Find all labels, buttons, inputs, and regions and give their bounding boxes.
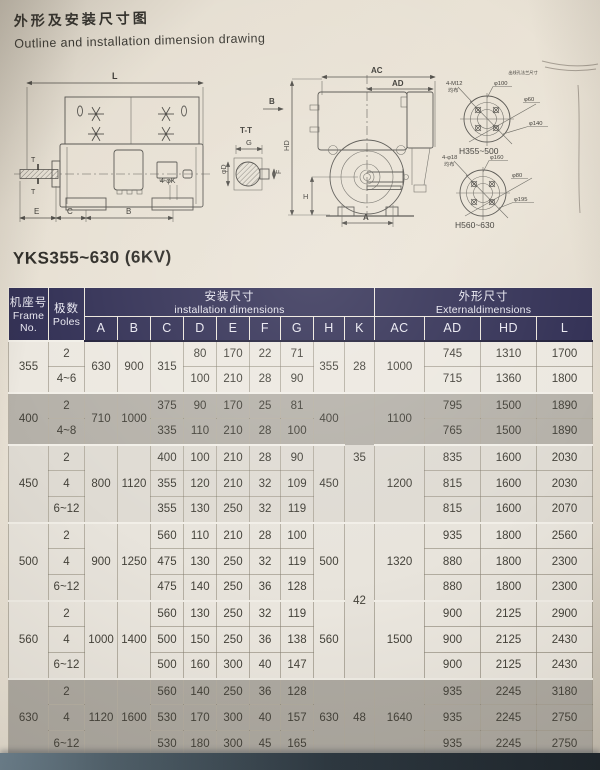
dim-cell: 1000 [375,341,425,393]
dimension-drawings: L T T 4-φK E C [0,55,600,250]
table-row: 355 2 630 900 315 80 170 22 71 355 28 10… [9,341,593,367]
dim-cell: 32 [250,601,281,627]
dim-cell: 130 [184,549,217,575]
page-title-en: Outline and installation dimension drawi… [14,31,265,51]
dim-label-hd: HD [282,140,291,151]
col-g: G [281,317,314,341]
dim-cell: 1500 [481,419,537,445]
dim-cell: 375 [151,393,184,419]
dim-cell: 900 [425,601,481,627]
frame-cell: 400 [9,393,49,445]
poles-cell: 2 [49,523,85,549]
dim-cell: 119 [281,549,314,575]
outlet-flange-detail-355-500: 出线孔法兰尺寸 4-M12 均布 φ100 φ60 φ140 H355~500 [446,69,548,156]
dim-cell: 3180 [537,679,593,705]
dim-cell: 28 [250,445,281,471]
dim-cell: 128 [281,679,314,705]
table-row: 400 2 710 1000 375 90 170 25 81 400 35 1… [9,393,593,419]
install-label-en: installation dimensions [85,304,374,316]
dim-cell: 40 [250,653,281,679]
dim-cell: 90 [281,445,314,471]
dim-cell: 110 [184,523,217,549]
dim-cell: 100 [184,445,217,471]
col-group-external: 外形尺寸 Externaldimensions [375,288,593,317]
dim-cell: 28 [345,341,375,393]
dim-cell: 2430 [537,627,593,653]
view-b-label: B [269,97,275,106]
page-title-block: 外形及安装尺寸图 Outline and installation dimens… [14,5,266,51]
dim-label-l: L [112,71,118,81]
poles-cell: 2 [49,679,85,705]
dim-cell: 355 [151,497,184,523]
dim-cell: 2125 [481,601,537,627]
dim-cell: 1600 [118,679,151,757]
dim-cell: 1000 [118,393,151,445]
dim-cell: 560 [151,523,184,549]
dimensions-table: 机座号 Frame No. 极数 Poles 安装尺寸 installation… [8,287,593,757]
terminal-box [114,150,143,190]
dim-cell: 2750 [537,705,593,731]
col-ad: AD [425,317,481,341]
dim-cell: 880 [425,575,481,601]
dim-cell: 170 [217,341,250,367]
frame-cell: 500 [9,523,49,601]
dim-cell: 1600 [481,471,537,497]
frame-cell: 560 [9,601,49,679]
dim-cell: 800 [85,445,118,523]
dim-cell: 170 [184,705,217,731]
dim-cell: 1800 [537,367,593,393]
dim-cell: 150 [184,627,217,653]
dim-cell: 1100 [375,393,425,445]
outlet-flange-detail-560-630: 4-φ18 均布 φ160 φ80 φ195 H560~630 [442,155,534,230]
dim-cell: 109 [281,471,314,497]
poles-cell: 2 [49,341,85,367]
foot-holes-label: 4-φK [160,178,176,185]
dim-cell: 100 [281,523,314,549]
dim-cell: 2245 [481,679,537,705]
table-row: 450 2 800 1120 400 100 210 28 90 450 120… [9,445,593,471]
fan-icon [88,107,104,121]
page-curl-line [542,61,598,66]
shaft-section-view: T-T G F φD [221,126,283,190]
dim-cell: 1600 [481,445,537,471]
dim-cell: 170 [217,393,250,419]
dim-cell: 1890 [537,419,593,445]
page-edge-line [578,85,580,213]
dim-label-ac: AC [371,66,383,75]
dim-cell: 1500 [481,393,537,419]
dim-cell: 2430 [537,653,593,679]
dim-cell: 22 [250,341,281,367]
dim-cell: 630 [85,341,118,393]
poles-label-en: Poles [49,316,84,328]
dim-cell: 250 [217,575,250,601]
dim-cell: 900 [118,341,151,393]
page-title-zh: 外形及安装尺寸图 [14,5,265,31]
dim-cell: 130 [184,601,217,627]
dim-cell: 880 [425,549,481,575]
dim-cell: 100 [281,419,314,445]
flange-note: 出线孔法兰尺寸 [508,69,537,76]
dim-cell: 90 [281,367,314,393]
dim-cell: 450 [314,445,345,523]
dim-cell: 300 [217,653,250,679]
dim-cell: 1120 [85,679,118,757]
dim-cell: 715 [425,367,481,393]
dim-cell: 42 [345,523,375,679]
col-header-frame: 机座号 Frame No. [9,288,49,341]
dim-cell: 900 [85,523,118,601]
flange-d1-label: φ160 [490,155,503,161]
dim-cell: 1000 [85,601,118,679]
dim-cell: 81 [281,393,314,419]
dim-cell: 32 [250,471,281,497]
poles-label-zh: 极数 [49,300,84,316]
dim-label-e: E [34,207,39,216]
frame-label-en: Frame [9,310,48,322]
col-l: L [537,317,593,341]
table-row: 630 2 1120 1600 560 140 250 36 128 630 4… [9,679,593,705]
dim-cell: 745 [425,341,481,367]
dim-cell: 110 [184,419,217,445]
dim-cell: 250 [217,497,250,523]
dim-label-ad: AD [392,79,404,88]
dim-cell: 138 [281,627,314,653]
dim-cell: 36 [250,627,281,653]
model-heading: YKS355~630 (6KV) [13,247,172,269]
dim-cell: 1360 [481,367,537,393]
dim-cell: 1600 [481,497,537,523]
dim-cell: 765 [425,419,481,445]
col-c: C [151,317,184,341]
dim-cell: 1400 [118,601,151,679]
external-label-zh: 外形尺寸 [375,288,592,304]
flange-evenly-label: 均布 [448,86,458,94]
dim-cell: 157 [281,705,314,731]
dim-cell: 147 [281,653,314,679]
dim-cell: 815 [425,471,481,497]
section-cut-label-upper: T [31,157,36,164]
dim-cell: 2125 [481,653,537,679]
dim-cell: 2560 [537,523,593,549]
poles-cell: 4 [49,471,85,497]
table-subheader-row: A B C D E F G H K AC AD HD L [9,317,593,341]
dim-cell: 1200 [375,445,425,523]
dim-cell: 1640 [375,679,425,757]
dim-cell: 1320 [375,523,425,601]
dim-cell: 48 [345,679,375,757]
col-d: D [184,317,217,341]
poles-cell: 4 [49,627,85,653]
col-k: K [345,317,375,341]
dim-cell: 36 [250,679,281,705]
dim-cell: 2070 [537,497,593,523]
dim-cell: 250 [217,549,250,575]
poles-cell: 4 [49,549,85,575]
frame-cell: 355 [9,341,49,393]
dim-cell: 530 [151,705,184,731]
dim-cell: 250 [217,601,250,627]
section-title: T-T [240,126,252,135]
dim-cell: 2900 [537,601,593,627]
dim-cell: 500 [151,653,184,679]
section-cut-label-lower: T [31,189,36,196]
dim-cell: 28 [250,419,281,445]
frame-label-no: No. [9,322,48,334]
dim-cell: 28 [250,367,281,393]
dim-cell: 500 [314,523,345,601]
flange-d2-label: φ60 [524,97,534,103]
dim-cell: 1800 [481,523,537,549]
dim-cell: 1120 [118,445,151,523]
frame-cell: 630 [9,679,49,757]
dim-cell: 100 [184,367,217,393]
photo-bottom-edge [0,753,600,770]
dim-cell: 1500 [375,601,425,679]
poles-cell: 4~8 [49,419,85,445]
dim-cell: 935 [425,523,481,549]
fan-icon [88,127,104,141]
photographed-catalog-page: { "page": { "title_zh": "外形及安装尺寸图", "tit… [0,0,600,770]
col-a: A [85,317,118,341]
dim-label-a: A [363,213,369,222]
dim-cell: 315 [151,341,184,393]
dim-cell: 335 [151,419,184,445]
dim-label-phi-d: φD [221,164,228,174]
dim-cell: 500 [151,627,184,653]
poles-cell: 2 [49,393,85,419]
dim-cell: 935 [425,705,481,731]
dim-cell: 1250 [118,523,151,601]
flange-bolts-label: 4-M12 [446,81,462,87]
poles-cell: 4~6 [49,367,85,393]
dim-cell: 119 [281,601,314,627]
dim-cell: 80 [184,341,217,367]
flange-d3-label: φ195 [514,197,527,203]
dim-cell: 400 [314,393,345,445]
fan-icon [158,127,174,141]
dim-cell: 1700 [537,341,593,367]
dim-cell: 210 [217,445,250,471]
fan-icon [158,107,174,121]
dim-cell: 40 [250,705,281,731]
dim-cell: 210 [217,471,250,497]
poles-cell: 2 [49,601,85,627]
col-header-poles: 极数 Poles [49,288,85,341]
external-label-en: Externaldimensions [375,304,592,316]
dim-cell: 36 [250,575,281,601]
dim-cell: 140 [184,575,217,601]
dim-cell: 2300 [537,575,593,601]
dim-label-f: F [276,170,283,174]
dim-cell: 710 [85,393,118,445]
dim-cell: 130 [184,497,217,523]
dim-label-c: C [67,207,73,216]
dim-cell: 1800 [481,549,537,575]
dim-cell: 210 [217,367,250,393]
table-header-row: 机座号 Frame No. 极数 Poles 安装尺寸 installation… [9,288,593,317]
poles-cell: 6~12 [49,497,85,523]
col-hd: HD [481,317,537,341]
poles-cell: 2 [49,445,85,471]
dim-cell: 355 [151,471,184,497]
frame-cell: 450 [9,445,49,523]
dim-cell: 250 [217,627,250,653]
dim-cell: 71 [281,341,314,367]
dim-cell: 900 [425,627,481,653]
dim-cell: 475 [151,549,184,575]
dim-cell: 140 [184,679,217,705]
dim-cell: 160 [184,653,217,679]
poles-cell: 4 [49,705,85,731]
dim-cell: 210 [217,419,250,445]
dim-cell: 300 [217,705,250,731]
dim-cell: 2030 [537,471,593,497]
poles-cell: 6~12 [49,575,85,601]
dim-cell: 35 [345,393,375,523]
poles-cell: 6~12 [49,653,85,679]
dim-cell: 120 [184,471,217,497]
dim-cell: 250 [217,679,250,705]
dim-cell: 1310 [481,341,537,367]
dim-cell: 400 [151,445,184,471]
col-b: B [118,317,151,341]
frame-label-zh: 机座号 [9,294,48,310]
motor-side-view: L T T 4-φK E C [14,71,212,222]
dim-cell: 935 [425,679,481,705]
dim-cell: 90 [184,393,217,419]
dim-cell: 795 [425,393,481,419]
dim-cell: 25 [250,393,281,419]
dim-cell: 2245 [481,705,537,731]
dim-cell: 835 [425,445,481,471]
terminal-box-side [407,92,433,148]
dim-cell: 2030 [537,445,593,471]
flange-evenly-label: 均布 [444,160,454,168]
dim-cell: 2125 [481,627,537,653]
dim-cell: 560 [314,601,345,679]
dim-cell: 128 [281,575,314,601]
dim-cell: 1800 [481,575,537,601]
flange-caption-2: H560~630 [455,220,495,230]
col-e: E [217,317,250,341]
table-row: 560 2 1000 1400 560 130 250 32 119 560 1… [9,601,593,627]
dim-cell: 32 [250,497,281,523]
dim-label-g: G [246,138,252,147]
col-f: F [250,317,281,341]
dim-cell: 560 [151,679,184,705]
col-group-installation: 安装尺寸 installation dimensions [85,288,375,317]
dim-cell: 210 [217,523,250,549]
motor-end-view: AC AD HD H A [282,66,435,227]
dim-cell: 119 [281,497,314,523]
col-h: H [314,317,345,341]
dim-cell: 475 [151,575,184,601]
flange-d1-label: φ100 [494,81,507,87]
dim-cell: 630 [314,679,345,757]
dim-cell: 815 [425,497,481,523]
table-row: 500 2 900 1250 560 110 210 28 100 500 42… [9,523,593,549]
install-label-zh: 安装尺寸 [85,288,374,304]
flange-d2-label: φ80 [512,173,522,179]
col-ac: AC [375,317,425,341]
view-direction-arrow: B [263,97,283,109]
dim-cell: 560 [151,601,184,627]
dim-label-b: B [126,207,131,216]
page-curl-line [545,67,596,71]
dim-cell: 1890 [537,393,593,419]
dim-cell: 32 [250,549,281,575]
dim-cell: 355 [314,341,345,393]
dim-cell: 2300 [537,549,593,575]
dim-cell: 900 [425,653,481,679]
dim-label-h: H [303,192,308,201]
flange-bolts-label: 4-φ18 [442,155,457,161]
dim-cell: 28 [250,523,281,549]
flange-d3-label: φ140 [529,121,542,127]
